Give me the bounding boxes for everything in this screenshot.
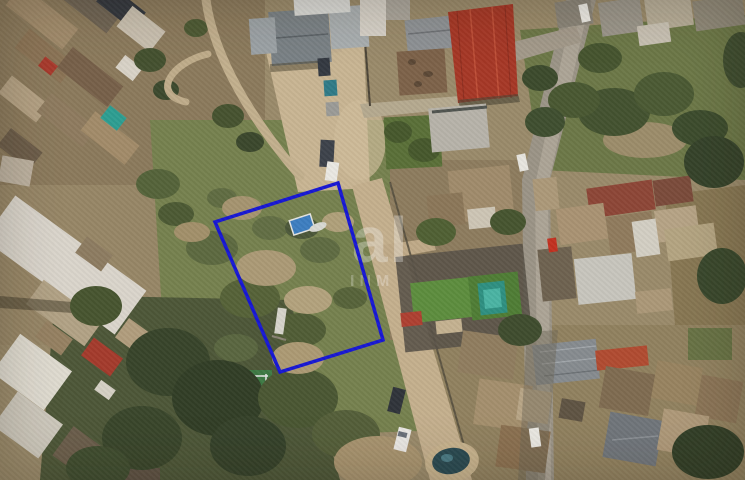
watermark-small-text: INM (350, 273, 394, 290)
tree (416, 218, 456, 246)
building-roof (599, 366, 656, 416)
tree (184, 19, 208, 37)
tree (522, 65, 558, 91)
industrial-roof (249, 17, 277, 55)
parcel-scrub-blob (300, 237, 340, 263)
building-roof (532, 177, 559, 211)
roof-texture (408, 59, 416, 65)
tree (672, 425, 744, 479)
parcel-dirt-patch (236, 250, 296, 286)
tree (684, 136, 744, 188)
warehouse-roof (574, 253, 636, 305)
parked-car (326, 102, 340, 117)
parcel-scrub-blob (333, 287, 367, 309)
covered-pool-inner (483, 288, 502, 309)
yard-green (688, 328, 732, 360)
parcel-scrub-blob (214, 334, 258, 362)
building-roof (635, 288, 673, 314)
building-roof (556, 203, 609, 245)
satellite-canvas: alINM (0, 0, 745, 480)
building-roof (632, 219, 661, 258)
scrub (136, 169, 180, 199)
building-roof (598, 0, 644, 37)
tree (134, 48, 166, 72)
tree (697, 248, 745, 304)
tree (634, 72, 694, 116)
parcel-dirt-patch (174, 222, 210, 242)
aerial-photo: alINM (0, 0, 745, 480)
building-roof (537, 246, 576, 301)
building-roof (386, 0, 410, 20)
tree (578, 43, 622, 73)
building-roof (651, 360, 703, 405)
building-roof (652, 175, 693, 206)
tree (498, 314, 542, 346)
tree (525, 107, 565, 137)
tree (490, 209, 526, 235)
building-roof (360, 0, 386, 36)
roof-texture (423, 71, 433, 77)
pool-glint (441, 454, 453, 462)
building-roof (0, 155, 34, 186)
red-awning (400, 311, 422, 327)
tree (236, 132, 264, 152)
parcel-scrub-blob (252, 216, 288, 240)
patio (435, 319, 462, 335)
building-roof (558, 398, 585, 422)
industrial-roof (268, 8, 332, 66)
parcel-dirt-patch (284, 286, 332, 314)
old-tile-roof (397, 48, 448, 95)
tree (212, 104, 244, 128)
gray-pitched-roof (602, 412, 663, 467)
parked-car (317, 58, 330, 77)
tree (210, 416, 286, 476)
roof-texture (414, 81, 422, 87)
tree (384, 121, 412, 143)
tree (70, 286, 122, 326)
parked-car (323, 80, 337, 97)
big-red-roof (448, 4, 518, 103)
